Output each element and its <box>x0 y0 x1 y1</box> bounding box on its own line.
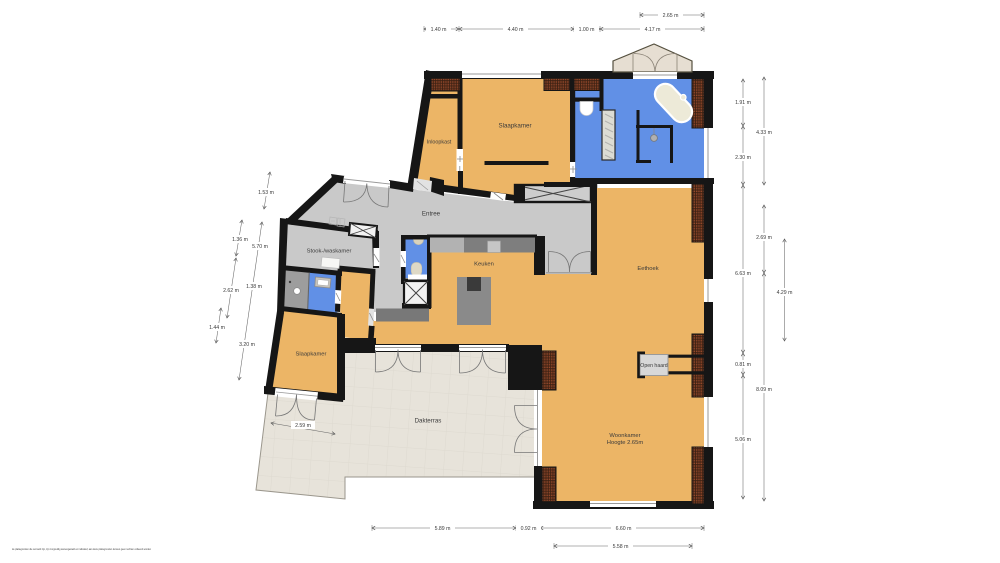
svg-text:Open haard: Open haard <box>640 363 668 369</box>
svg-text:1.38 m: 1.38 m <box>246 284 262 290</box>
svg-text:2.62 m: 2.62 m <box>223 288 239 294</box>
svg-text:5.70 m: 5.70 m <box>252 244 268 250</box>
svg-text:2.69 m: 2.69 m <box>756 235 772 241</box>
svg-text:Inloopkast: Inloopkast <box>427 140 452 146</box>
svg-text:1.53 m: 1.53 m <box>258 190 274 196</box>
svg-text:4.17 m: 4.17 m <box>645 27 661 33</box>
svg-text:1.91 m: 1.91 m <box>735 100 751 106</box>
svg-text:2.30 m: 2.30 m <box>735 155 751 161</box>
svg-text:Keuken: Keuken <box>474 262 494 268</box>
svg-text:1.44 m: 1.44 m <box>209 325 225 331</box>
svg-text:Woonkamer: Woonkamer <box>609 433 640 439</box>
svg-text:Stook-/waskamer: Stook-/waskamer <box>307 249 352 255</box>
svg-text:6.63 m: 6.63 m <box>735 271 751 277</box>
svg-text:Hoogte 2.65m: Hoogte 2.65m <box>607 440 644 446</box>
svg-text:Slaapkamer: Slaapkamer <box>498 123 531 130</box>
svg-text:1.00 m: 1.00 m <box>579 27 595 33</box>
svg-text:1.40 m: 1.40 m <box>431 27 447 33</box>
svg-text:4.29 m: 4.29 m <box>777 290 793 296</box>
svg-text:4.40 m: 4.40 m <box>508 27 524 33</box>
svg-text:5.06 m: 5.06 m <box>735 437 751 443</box>
svg-text:1.36 m: 1.36 m <box>232 237 248 243</box>
svg-text:Entree: Entree <box>422 211 441 218</box>
svg-text:0.92 m: 0.92 m <box>521 526 537 532</box>
svg-text:2.59 m: 2.59 m <box>295 423 311 429</box>
svg-text:8.09 m: 8.09 m <box>756 387 772 393</box>
svg-text:Dakterras: Dakterras <box>415 418 442 425</box>
svg-text:Slaapkamer: Slaapkamer <box>296 352 327 358</box>
svg-text:5.89 m: 5.89 m <box>435 526 451 532</box>
svg-text:de plattegronden die vermeld z: de plattegronden die vermeld zijn, zijn … <box>12 547 151 551</box>
svg-text:6.60 m: 6.60 m <box>616 526 632 532</box>
svg-text:5.58 m: 5.58 m <box>613 544 629 550</box>
svg-text:0.81 m: 0.81 m <box>735 362 751 368</box>
svg-text:4.33 m: 4.33 m <box>756 130 772 136</box>
svg-text:Eethoek: Eethoek <box>637 266 658 272</box>
svg-text:2.65 m: 2.65 m <box>663 13 679 19</box>
svg-text:3.20 m: 3.20 m <box>239 342 255 348</box>
